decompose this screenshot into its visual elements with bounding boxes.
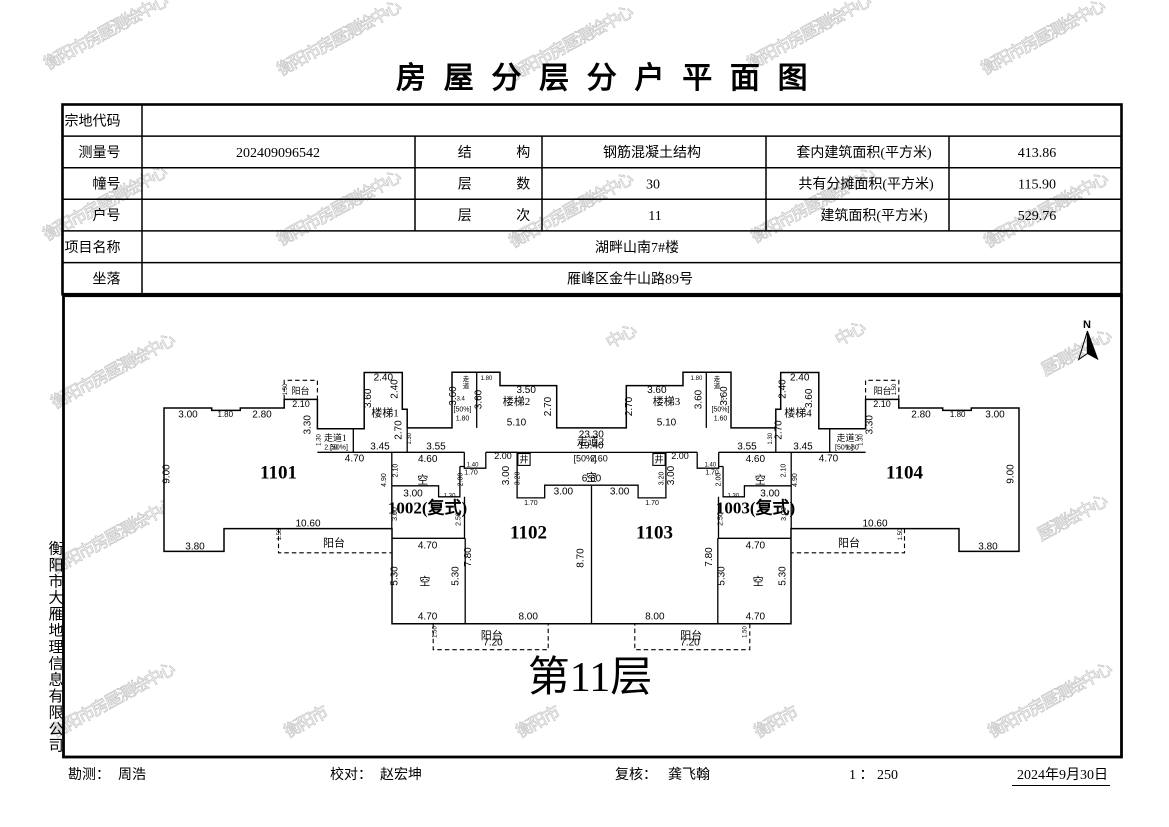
svg-text:3.80: 3.80 (185, 542, 205, 553)
svg-text:第11层: 第11层 (528, 655, 652, 701)
svg-text:5.30: 5.30 (450, 566, 461, 586)
svg-text:幢号: 幢号 (93, 176, 121, 193)
svg-text:阳台: 阳台 (838, 535, 860, 549)
svg-text:1.80: 1.80 (691, 376, 703, 382)
svg-text:2.10: 2.10 (781, 464, 788, 478)
svg-text:3.00: 3.00 (760, 488, 780, 499)
svg-text:构: 构 (516, 145, 530, 161)
svg-text:理: 理 (48, 640, 63, 656)
svg-text:衡阳市房屋测绘中心: 衡阳市房屋测绘中心 (41, 0, 172, 74)
svg-text:N: N (1083, 319, 1091, 331)
svg-text:2.00: 2.00 (716, 473, 723, 487)
svg-text:宗地代码: 宗地代码 (65, 113, 121, 129)
svg-text:息: 息 (48, 672, 63, 689)
svg-text:3.60: 3.60 (719, 386, 730, 406)
svg-text:5.10: 5.10 (507, 417, 527, 428)
svg-text:3.60: 3.60 (448, 386, 459, 406)
svg-text:2.60: 2.60 (590, 454, 608, 464)
svg-text:衡阳市: 衡阳市 (281, 702, 332, 741)
svg-text:3.45: 3.45 (793, 442, 813, 453)
svg-text:阳: 阳 (48, 557, 63, 574)
svg-text:9.00: 9.00 (1006, 464, 1017, 484)
svg-text:10.60: 10.60 (295, 518, 320, 529)
svg-text:3.45: 3.45 (370, 442, 390, 453)
svg-text:套内建筑面积(平方米): 套内建筑面积(平方米) (796, 145, 932, 161)
svg-text:屋测绘中心: 屋测绘中心 (1038, 326, 1115, 380)
svg-text:2.00: 2.00 (458, 473, 465, 487)
svg-text:8.70: 8.70 (575, 548, 586, 568)
svg-text:楼梯1: 楼梯1 (371, 406, 399, 420)
svg-text:衡阳市房屋测绘中心: 衡阳市房屋测绘中心 (48, 330, 179, 413)
svg-text:井: 井 (654, 454, 663, 465)
svg-text:2.70: 2.70 (543, 396, 554, 416)
svg-text:2.10: 2.10 (292, 399, 310, 409)
svg-text:3.55: 3.55 (737, 442, 757, 453)
svg-text:衡阳市: 衡阳市 (513, 702, 564, 741)
svg-text:3.20: 3.20 (515, 471, 522, 485)
svg-text:1.30: 1.30 (728, 494, 740, 500)
svg-text:2.10: 2.10 (392, 464, 399, 478)
svg-text:2.00: 2.00 (671, 451, 689, 461)
svg-text:11: 11 (648, 209, 661, 224)
svg-text:1.70: 1.70 (464, 470, 478, 477)
svg-text:衡阳市房屋测绘中心: 衡阳市房屋测绘中心 (274, 167, 405, 250)
svg-text:3.55: 3.55 (426, 442, 446, 453)
svg-text:屋测绘中心: 屋测绘中心 (1034, 491, 1111, 545)
svg-text:测量号: 测量号 (79, 145, 121, 161)
svg-text:1.30: 1.30 (317, 434, 323, 446)
svg-text:202409096542: 202409096542 (236, 146, 320, 161)
svg-text:限: 限 (48, 705, 63, 722)
svg-text:3.50: 3.50 (516, 385, 536, 396)
svg-text:井: 井 (519, 454, 528, 465)
svg-text:2.70: 2.70 (624, 396, 635, 416)
svg-text:3.00: 3.00 (666, 465, 677, 485)
svg-text:1.70: 1.70 (524, 500, 538, 507)
svg-text:赵宏坤: 赵宏坤 (380, 767, 422, 783)
svg-text:衡阳市房屋测绘中心: 衡阳市房屋测绘中心 (48, 659, 179, 742)
svg-text:3.00: 3.00 (985, 410, 1005, 421)
svg-text:中心: 中心 (603, 320, 640, 352)
svg-text:115.90: 115.90 (1018, 178, 1056, 193)
svg-text:房屋分层分户平面图: 房屋分层分户平面图 (396, 62, 825, 95)
svg-text:5.30: 5.30 (390, 566, 401, 586)
svg-text:衡阳市房屋测绘中心: 衡阳市房屋测绘中心 (274, 0, 405, 80)
svg-text:2.80: 2.80 (252, 410, 272, 421)
svg-text:道: 道 (463, 381, 470, 390)
svg-text:1.80: 1.80 (481, 376, 493, 382)
svg-text:中心: 中心 (832, 317, 869, 349)
svg-text:8.00: 8.00 (645, 611, 665, 622)
svg-text:8.00: 8.00 (518, 611, 538, 622)
svg-text:2.40: 2.40 (390, 379, 401, 399)
svg-text:3.00: 3.00 (392, 507, 399, 521)
svg-text:空: 空 (417, 473, 428, 487)
svg-text:建筑面积(平方米): 建筑面积(平方米) (820, 208, 928, 224)
svg-text:30: 30 (646, 178, 660, 193)
svg-text:衡阳市: 衡阳市 (751, 702, 802, 741)
svg-text:2.50: 2.50 (718, 512, 725, 526)
svg-text:阳台: 阳台 (323, 535, 345, 549)
svg-text:楼梯3: 楼梯3 (653, 394, 681, 408)
svg-text:3.60: 3.60 (804, 388, 815, 408)
svg-text:[50%]: [50%] (454, 407, 472, 414)
svg-text:3.00: 3.00 (501, 465, 512, 485)
svg-text:7.80: 7.80 (463, 547, 474, 567)
svg-text:3.60: 3.60 (473, 389, 484, 409)
svg-text:3.20: 3.20 (658, 471, 665, 485)
svg-text:衡阳市房屋测绘中心: 衡阳市房屋测绘中心 (48, 495, 179, 578)
svg-text:大: 大 (48, 590, 63, 607)
svg-text:空: 空 (755, 473, 766, 487)
svg-text:层: 层 (458, 209, 472, 224)
svg-text:4.70: 4.70 (418, 611, 438, 622)
svg-text:1.50: 1.50 (892, 383, 898, 395)
svg-text:雁: 雁 (48, 606, 63, 623)
svg-text:[50%]: [50%] (712, 407, 730, 414)
svg-text:3.60: 3.60 (647, 385, 667, 396)
svg-text:结: 结 (458, 145, 472, 161)
svg-text:周浩: 周浩 (118, 767, 146, 783)
svg-text:5.30: 5.30 (778, 566, 789, 586)
svg-text:7.20: 7.20 (483, 637, 503, 648)
svg-text:楼梯2: 楼梯2 (503, 394, 531, 408)
svg-text:6.60: 6.60 (582, 474, 602, 485)
svg-text:衡阳市房屋测绘中心: 衡阳市房屋测绘中心 (40, 162, 171, 245)
svg-text:10.60: 10.60 (862, 518, 887, 529)
svg-text:信: 信 (48, 655, 63, 672)
svg-text:坐落: 坐落 (93, 271, 121, 287)
svg-text:1.80: 1.80 (456, 416, 470, 423)
svg-text:1.70: 1.70 (645, 500, 659, 507)
svg-text:2.80: 2.80 (911, 410, 931, 421)
svg-text:项目名称: 项目名称 (65, 240, 121, 256)
svg-text:2.70: 2.70 (394, 420, 405, 440)
svg-text:走: 走 (463, 375, 470, 383)
svg-text:司: 司 (48, 738, 63, 754)
svg-text:1.50: 1.50 (433, 626, 439, 638)
svg-text:衡: 衡 (48, 541, 63, 558)
svg-text:空: 空 (419, 574, 430, 588)
svg-text:1.40: 1.40 (467, 462, 479, 468)
svg-text:2.70: 2.70 (774, 420, 785, 440)
svg-text:4.90: 4.90 (381, 473, 388, 487)
svg-text:1.50: 1.50 (898, 528, 904, 540)
svg-text:3.00: 3.00 (610, 486, 630, 497)
svg-text:2.10: 2.10 (873, 399, 891, 409)
svg-text:有: 有 (48, 688, 63, 705)
svg-text:校对：: 校对： (330, 766, 372, 783)
svg-text:1101: 1101 (260, 463, 297, 484)
svg-text:2024年9月30日: 2024年9月30日 (1017, 767, 1108, 783)
svg-text:413.86: 413.86 (1018, 146, 1057, 161)
svg-text:龚飞翰: 龚飞翰 (668, 767, 710, 783)
svg-text:地: 地 (48, 623, 63, 640)
svg-text:勘测：: 勘测： (68, 767, 110, 783)
svg-text:3.00: 3.00 (403, 488, 423, 499)
svg-text:雁峰区金牛山路89号: 雁峰区金牛山路89号 (567, 271, 693, 287)
svg-text:户号: 户号 (93, 207, 121, 224)
svg-text:共有分摊面积(平方米): 共有分摊面积(平方米) (798, 177, 934, 193)
svg-text:9.00: 9.00 (162, 464, 173, 484)
svg-text:2.40: 2.40 (790, 373, 810, 384)
svg-text:2.00: 2.00 (494, 451, 512, 461)
svg-text:4.70: 4.70 (819, 453, 839, 464)
svg-text:7.80: 7.80 (704, 547, 715, 567)
svg-text:1.60: 1.60 (714, 416, 728, 423)
svg-text:钢筋混凝土结构: 钢筋混凝土结构 (603, 144, 701, 161)
svg-text:4.70: 4.70 (345, 453, 365, 464)
svg-text:1.50: 1.50 (277, 528, 283, 540)
svg-text:[50%]: [50%] (330, 444, 348, 451)
svg-text:3.80: 3.80 (978, 542, 998, 553)
svg-text:次: 次 (516, 208, 530, 224)
svg-text:楼梯4: 楼梯4 (784, 406, 812, 420)
svg-text:1.80: 1.80 (950, 410, 966, 419)
svg-text:走道3: 走道3 (836, 432, 859, 443)
svg-text:阳台: 阳台 (873, 385, 891, 396)
svg-text:1.40: 1.40 (705, 462, 717, 468)
svg-text:1102: 1102 (510, 523, 547, 544)
svg-text:4.60: 4.60 (746, 454, 766, 465)
svg-text:公: 公 (48, 722, 63, 738)
svg-text:3.60: 3.60 (694, 389, 705, 409)
svg-text:4.70: 4.70 (746, 611, 766, 622)
svg-text:1.30: 1.30 (858, 434, 864, 446)
svg-text:1103: 1103 (636, 523, 673, 544)
svg-text:3.60: 3.60 (363, 388, 374, 408)
svg-text:5.10: 5.10 (657, 417, 677, 428)
svg-text:4.70: 4.70 (418, 540, 438, 551)
svg-text:阳台: 阳台 (291, 385, 309, 396)
svg-text:层: 层 (458, 178, 472, 193)
svg-text:4.90: 4.90 (792, 473, 799, 487)
svg-text:衡阳市房屋测绘中心: 衡阳市房屋测绘中心 (985, 659, 1116, 742)
svg-text:4.70: 4.70 (746, 540, 766, 551)
svg-text:7.20: 7.20 (680, 637, 700, 648)
svg-text:走: 走 (714, 375, 721, 383)
svg-text:1.80: 1.80 (218, 410, 234, 419)
svg-text:2.50: 2.50 (455, 512, 462, 526)
svg-text:3.30: 3.30 (865, 415, 876, 435)
svg-text:3.00: 3.00 (178, 410, 198, 421)
svg-text:衡阳市房屋测绘中心: 衡阳市房屋测绘中心 (748, 164, 879, 247)
svg-text:数: 数 (516, 177, 530, 193)
svg-text:湖畔山南7#楼: 湖畔山南7#楼 (595, 240, 679, 256)
svg-text:4.60: 4.60 (418, 454, 438, 465)
svg-text:空: 空 (753, 574, 764, 588)
svg-text:1.50: 1.50 (742, 626, 748, 638)
svg-text:5.30: 5.30 (717, 566, 728, 586)
svg-text:3.00: 3.00 (554, 486, 574, 497)
svg-text:1.30: 1.30 (407, 432, 413, 444)
svg-text:1.50: 1.50 (283, 383, 289, 395)
svg-text:走道1: 走道1 (324, 432, 347, 443)
svg-text:3.00: 3.00 (781, 507, 788, 521)
svg-text:复核：: 复核： (615, 766, 657, 783)
svg-text:1 ： 250: 1 ： 250 (849, 768, 898, 783)
svg-text:[50%]: [50%] (835, 444, 853, 451)
svg-text:3.30: 3.30 (303, 415, 314, 435)
svg-text:1104: 1104 (886, 463, 923, 484)
svg-text:2.40: 2.40 (777, 379, 788, 399)
svg-text:19.40: 19.40 (578, 441, 603, 452)
svg-text:529.76: 529.76 (1018, 209, 1057, 224)
svg-text:衡阳市房屋测绘中心: 衡阳市房屋测绘中心 (978, 0, 1109, 79)
svg-text:市: 市 (48, 573, 63, 590)
svg-text:1.30: 1.30 (444, 494, 456, 500)
